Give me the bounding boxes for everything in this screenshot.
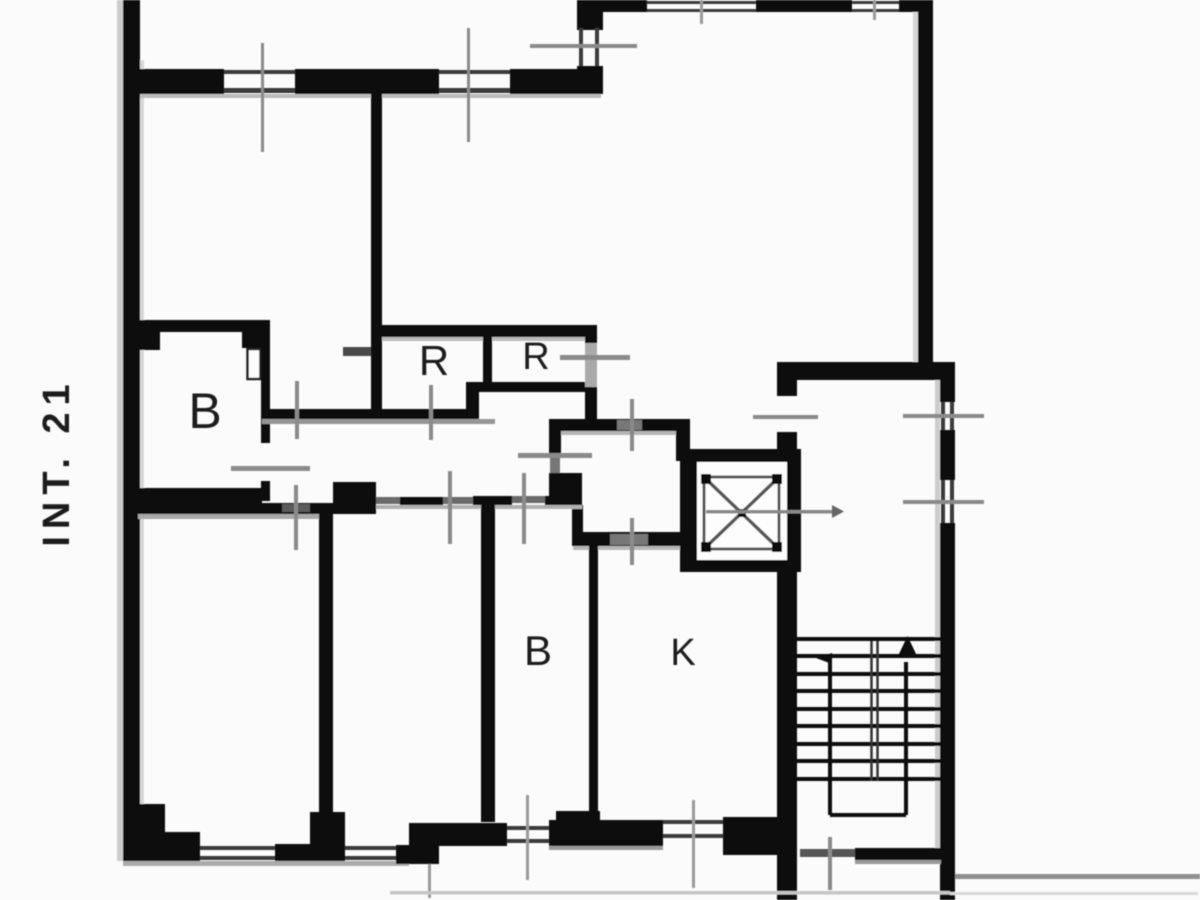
svg-text:R: R xyxy=(419,337,449,384)
svg-text:B: B xyxy=(188,383,221,439)
svg-text:INT. 21: INT. 21 xyxy=(36,377,78,546)
svg-text:K: K xyxy=(670,632,695,674)
svg-text:R: R xyxy=(522,336,549,378)
svg-text:B: B xyxy=(524,627,552,674)
